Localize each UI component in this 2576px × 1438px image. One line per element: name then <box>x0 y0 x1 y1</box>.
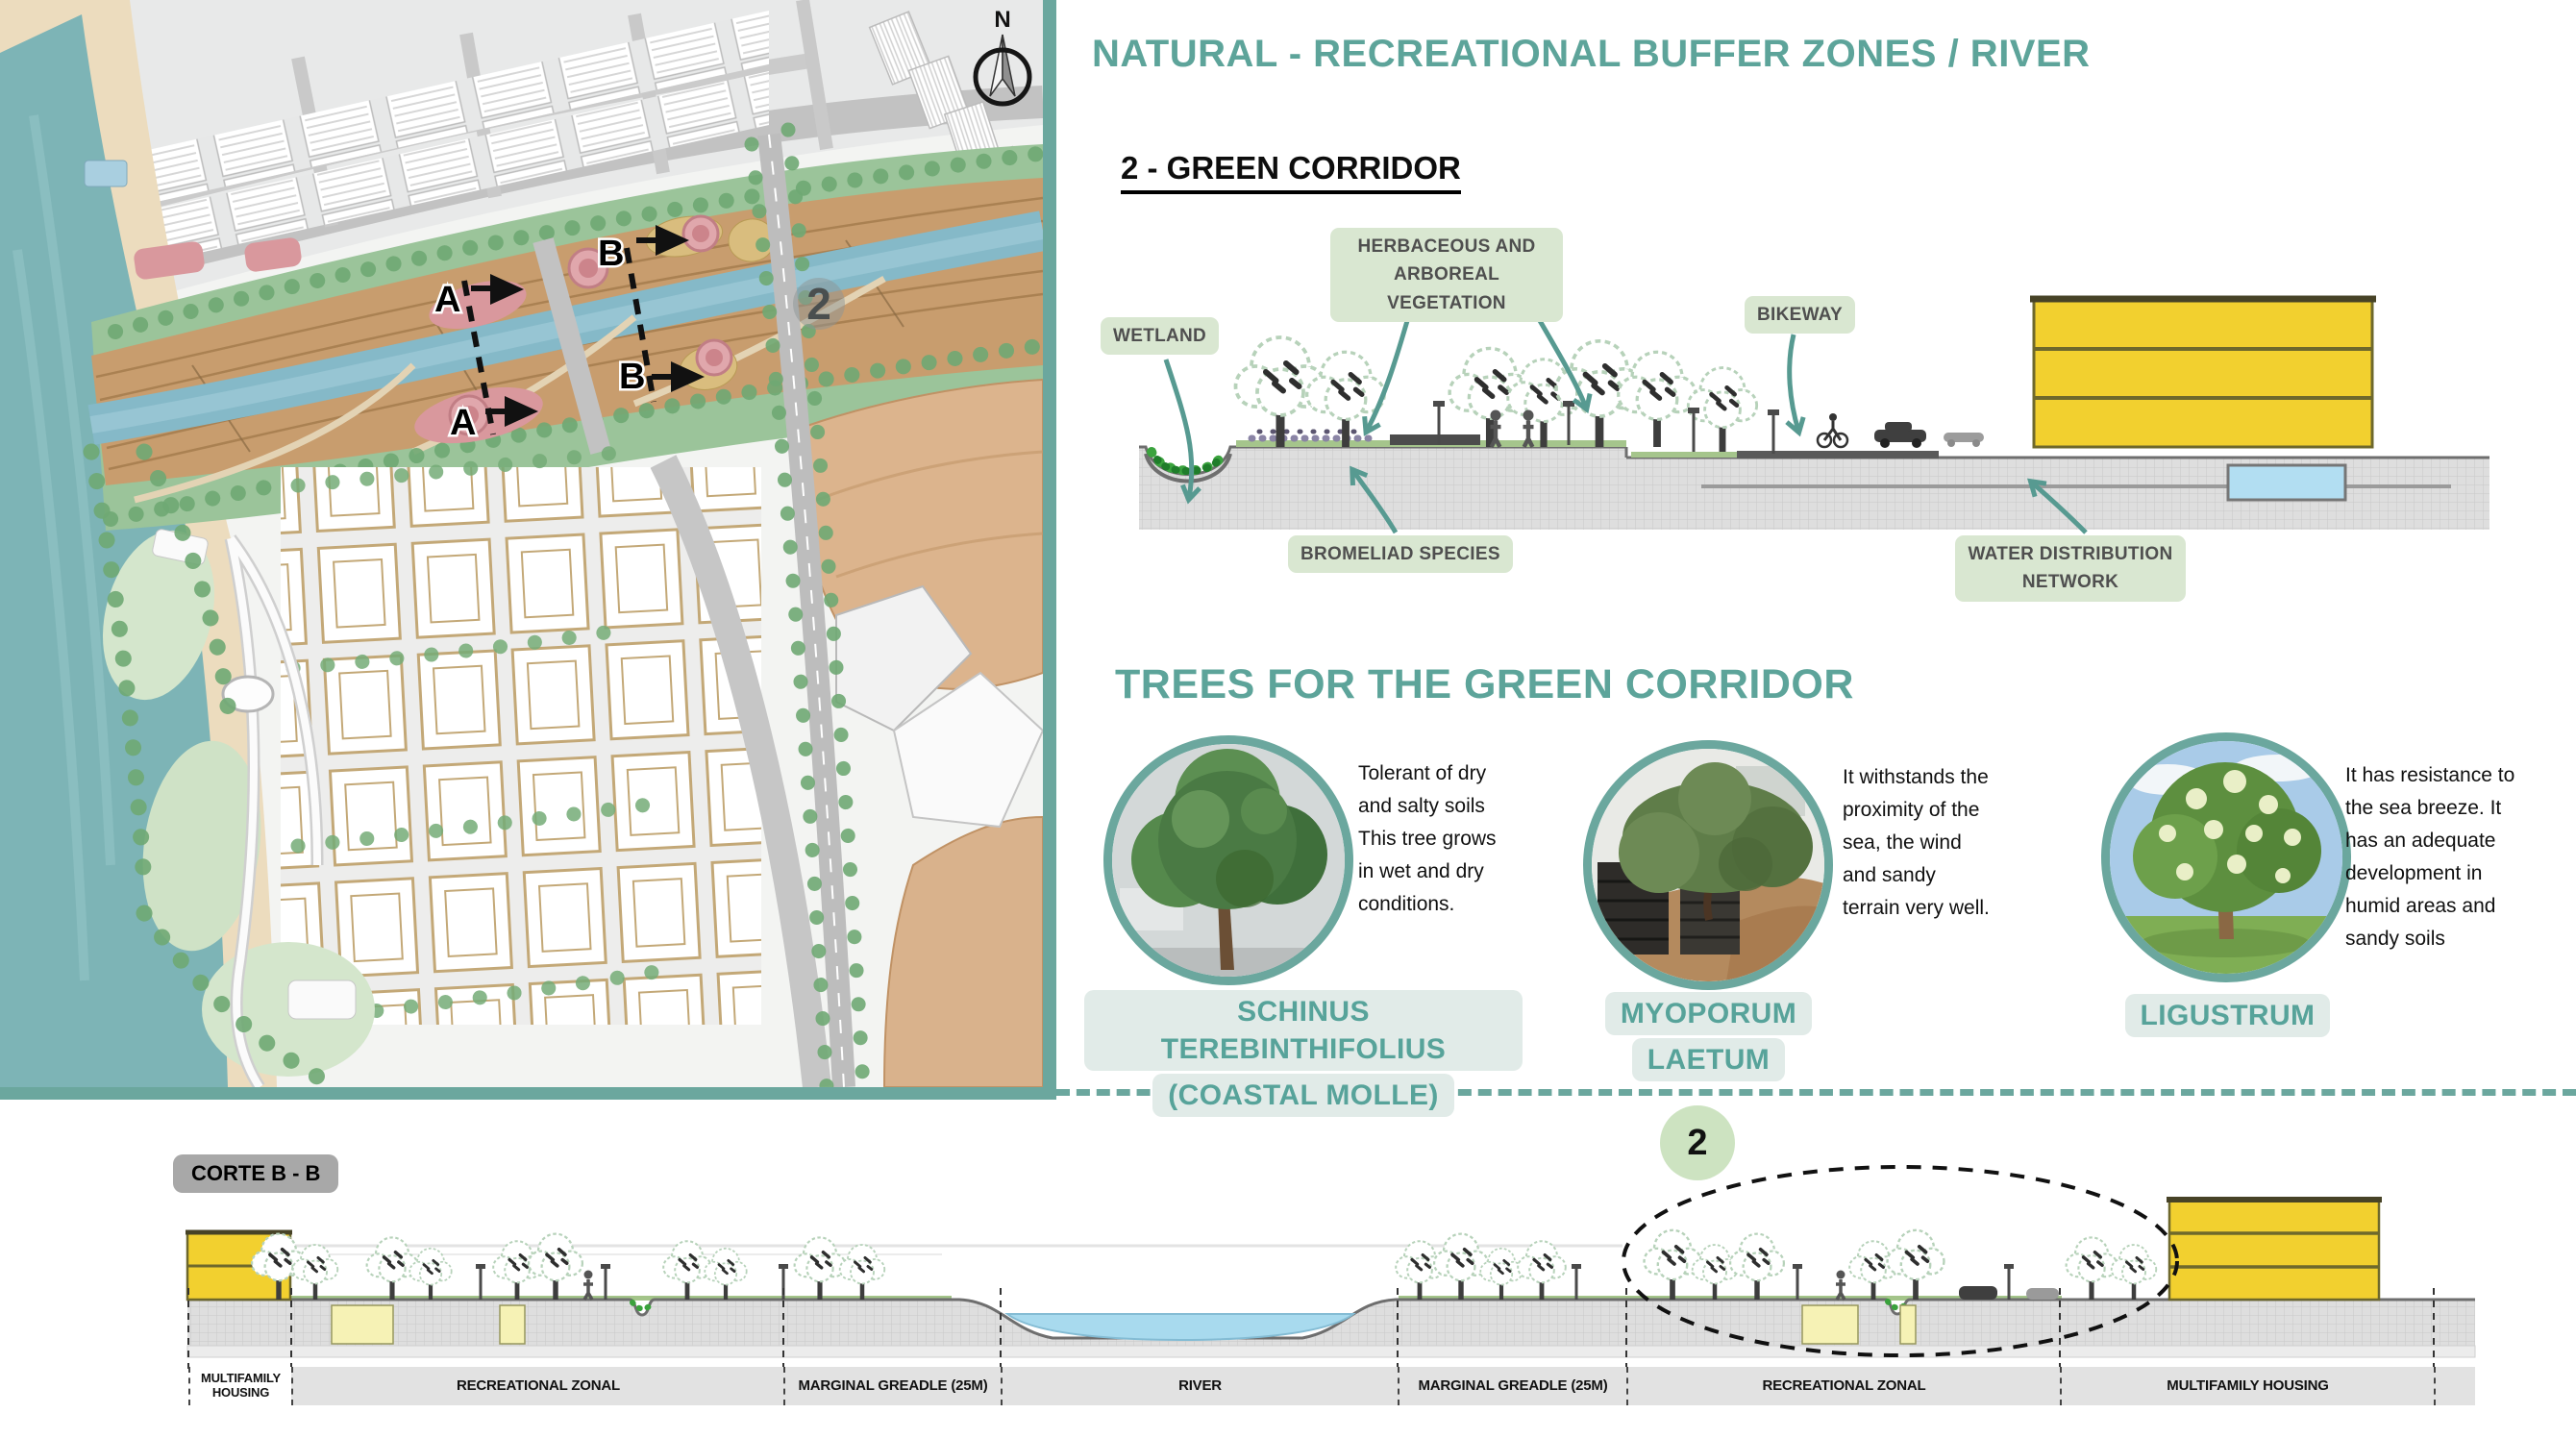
zone-recreational-left: RECREATIONAL ZONAL <box>291 1367 783 1405</box>
ligustrum-name: LIGUSTRUM <box>2110 994 2345 1037</box>
corte-number-badge: 2 <box>1660 1105 1735 1180</box>
tree-photo-myoporum <box>1583 740 1833 990</box>
myoporum-name: MYOPORUM LAETUM <box>1581 992 1836 1081</box>
ligustrum-name-line1: LIGUSTRUM <box>2125 994 2331 1037</box>
wetland-label: WETLAND <box>1101 317 1219 355</box>
water-network-label-line1: WATER DISTRIBUTION <box>1968 540 2173 568</box>
green-corridor-heading: 2 - GREEN CORRIDOR <box>1121 150 1461 194</box>
ligustrum-description: It has resistance to the sea breeze. It … <box>2345 759 2528 955</box>
section-label-a-bottom: A <box>450 403 476 443</box>
herbaceous-label: HERBACEOUS AND ARBOREAL VEGETATION <box>1330 228 1563 322</box>
corridor-section-drawing <box>1057 211 2557 634</box>
tree-photo-schinus <box>1103 735 1353 985</box>
trees-section-heading: TREES FOR THE GREEN CORRIDOR <box>1115 661 1854 708</box>
map-number-2: 2 <box>806 279 831 329</box>
map-frame-right <box>1043 0 1056 1100</box>
cyclist <box>1818 413 1847 447</box>
schinus-description: Tolerant of dry and salty soils This tre… <box>1358 757 1510 921</box>
tree-photo-ligustrum <box>2101 732 2351 982</box>
water-tank <box>2228 465 2345 500</box>
map-corridor-number: 2 <box>793 278 845 330</box>
bromeliad-planting <box>1251 432 1373 438</box>
presentation-board: 2 A A B B N NATURAL - RECRE <box>0 0 2576 1438</box>
bench <box>1390 434 1480 445</box>
schinus-tree-illustration <box>1112 744 1345 977</box>
page-title: NATURAL - RECREATIONAL BUFFER ZONES / RI… <box>1092 33 2091 76</box>
bikeway-label: BIKEWAY <box>1745 296 1855 334</box>
myoporum-name-line2: LAETUM <box>1632 1038 1785 1081</box>
section-label-b-bottom: B <box>619 357 645 397</box>
zone-multifamily-left: MULTIFAMILY HOUSING <box>188 1367 291 1405</box>
site-plan-map: 2 A A B B N <box>0 0 1043 1087</box>
myoporum-description: It withstands the proximity of the sea, … <box>1843 761 1998 925</box>
bikeway-path <box>1737 451 1939 459</box>
corte-river-water <box>1007 1314 1353 1340</box>
zone-label-strip: MULTIFAMILY HOUSING RECREATIONAL ZONAL M… <box>188 1367 2475 1405</box>
bromeliad-label: BROMELIAD SPECIES <box>1288 535 1513 573</box>
corte-section-drawing <box>58 1096 2518 1375</box>
water-network-label-line2: NETWORK <box>1968 568 2173 596</box>
zone-marginal-left: MARGINAL GREADLE (25M) <box>783 1367 1001 1405</box>
zone-marginal-right: MARGINAL GREADLE (25M) <box>1398 1367 1626 1405</box>
corte-title: CORTE B - B <box>173 1154 338 1193</box>
myoporum-name-line1: MYOPORUM <box>1605 992 1812 1035</box>
multifamily-building <box>2030 299 2376 447</box>
zone-multifamily-right: MULTIFAMILY HOUSING <box>2060 1367 2434 1405</box>
corte-trees <box>252 1230 2156 1300</box>
herbaceous-label-line2: ARBOREAL VEGETATION <box>1343 260 1550 317</box>
corte-building-right <box>2167 1200 2382 1300</box>
compass-north-label: N <box>994 7 1010 33</box>
water-network-label: WATER DISTRIBUTION NETWORK <box>1955 535 2186 602</box>
zone-strip-tail <box>2434 1367 2475 1405</box>
zone-river: RIVER <box>1001 1367 1398 1405</box>
herbaceous-label-line1: HERBACEOUS AND <box>1343 233 1550 260</box>
ligustrum-tree-illustration <box>2110 741 2342 974</box>
cars <box>1874 422 1984 448</box>
myoporum-tree-illustration <box>1592 749 1824 981</box>
zone-recreational-right: RECREATIONAL ZONAL <box>1626 1367 2060 1405</box>
section-label-a-top: A <box>434 280 460 320</box>
section-label-b-top: B <box>598 234 624 274</box>
schinus-name-line1: SCHINUS TEREBINTHIFOLIUS <box>1084 990 1523 1071</box>
